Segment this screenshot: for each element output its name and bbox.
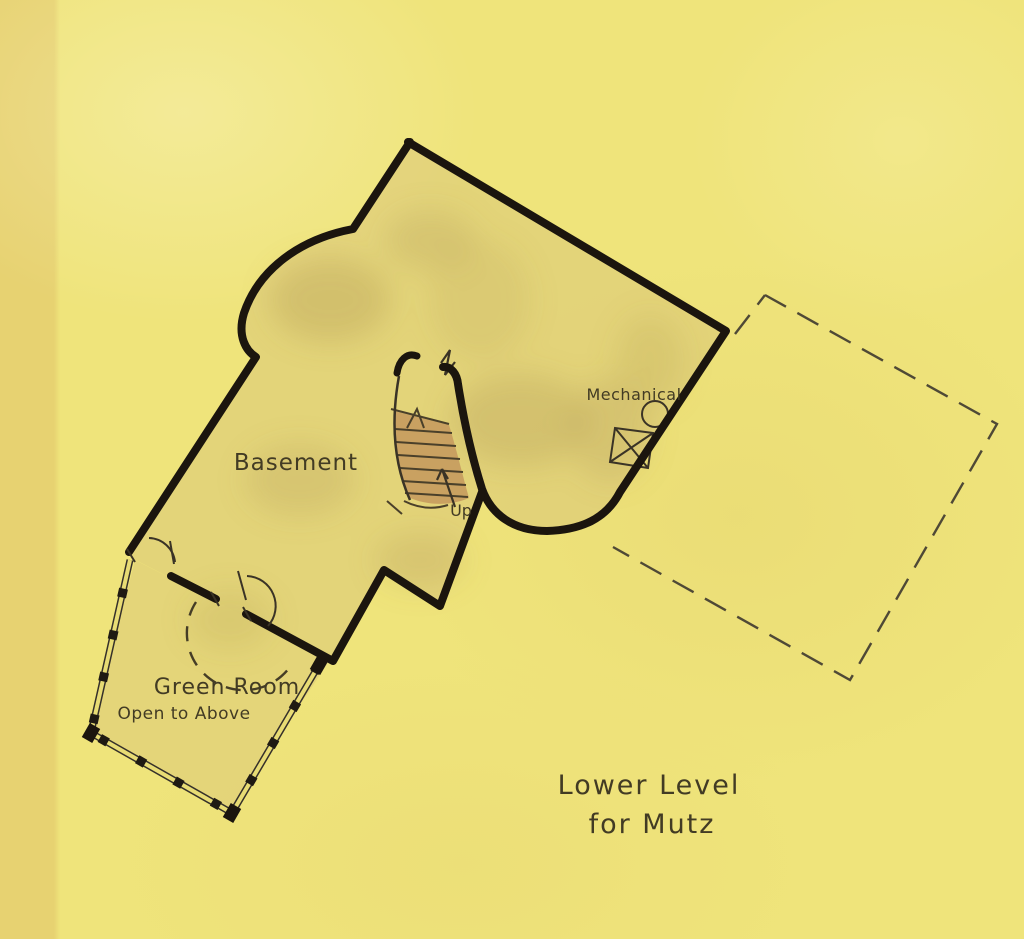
mechanical-label: Mechanical (586, 385, 681, 404)
plan-title-line1: Lower Level (558, 770, 741, 801)
green-room-label: Green Room (154, 675, 300, 700)
basement-label: Basement (234, 450, 358, 476)
plan-title-line2: for Mutz (589, 809, 716, 840)
open-to-above-label: Open to Above (117, 704, 250, 724)
up-label: Up (450, 501, 472, 520)
floor-plan-sheet: Basement Green Room Open to Above Mechan… (0, 0, 1024, 939)
dashed-stub (735, 295, 765, 334)
floor-plan-drawing: Basement Green Room Open to Above Mechan… (0, 0, 1024, 939)
